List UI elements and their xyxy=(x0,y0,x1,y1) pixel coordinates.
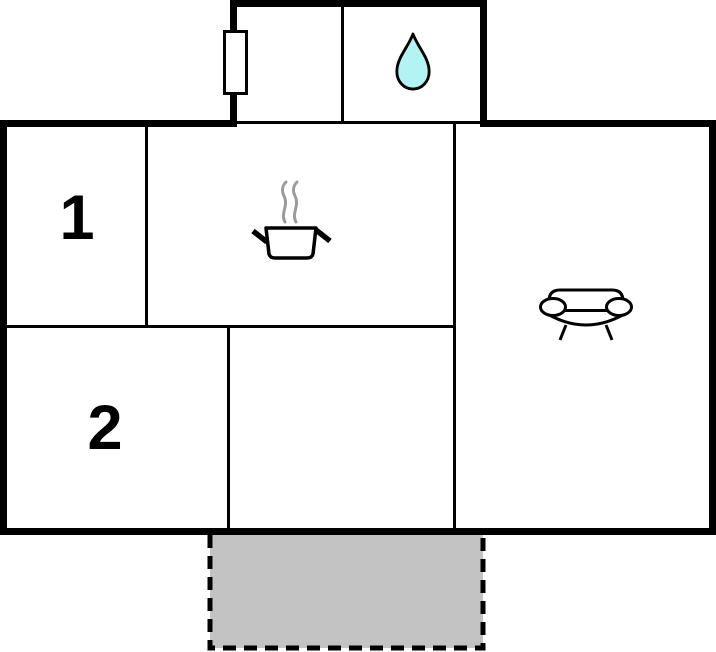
room-label-2: 2 xyxy=(7,328,203,528)
room-2-number: 2 xyxy=(87,397,122,460)
wall-room2-right xyxy=(227,325,230,528)
sofa-armrest-right xyxy=(607,299,632,316)
wall-main-right xyxy=(709,120,716,535)
wall-main-top-right xyxy=(480,120,716,127)
window-radiator-icon xyxy=(223,30,248,95)
wall-main-top-left xyxy=(0,120,237,127)
cooking-pot-icon xyxy=(250,180,334,264)
water-drop-shape xyxy=(397,34,429,89)
wall-livingroom-left xyxy=(453,122,456,528)
sofa-icon xyxy=(539,287,633,343)
sofa-leg-right xyxy=(606,325,612,340)
wall-annex-divider xyxy=(341,7,344,122)
wall-main-left xyxy=(0,120,7,535)
pot-body xyxy=(266,228,316,258)
wall-annex-right xyxy=(480,0,487,127)
floor-plan: 1 2 xyxy=(0,0,716,652)
steam-icon xyxy=(294,182,297,222)
pot-handle-right xyxy=(316,230,330,241)
sofa-leg-left xyxy=(560,325,566,340)
sofa-armrest-left xyxy=(541,299,566,316)
water-drop-icon xyxy=(394,32,432,91)
wall-annex-opening-line xyxy=(237,121,480,124)
steam-icon xyxy=(283,182,286,222)
room-label-1: 1 xyxy=(7,127,147,309)
room-1-number: 1 xyxy=(59,187,94,250)
terrace-area xyxy=(207,533,489,652)
terrace-fill xyxy=(210,535,483,648)
wall-annex-top xyxy=(230,0,487,7)
